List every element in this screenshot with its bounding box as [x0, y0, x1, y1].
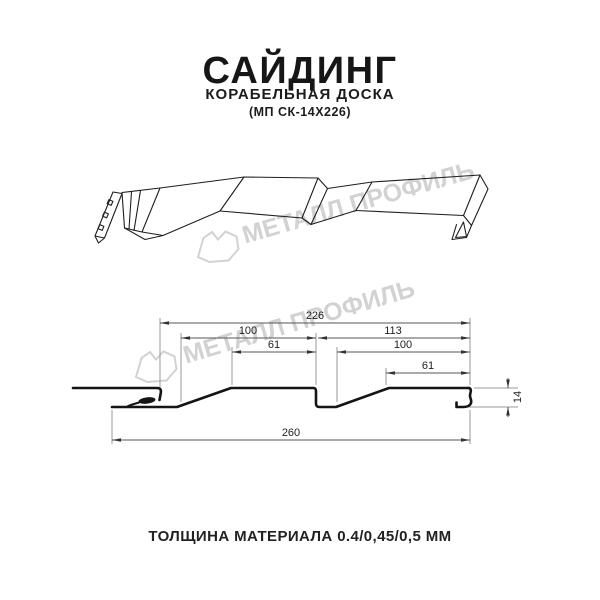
profile-outline	[73, 388, 471, 407]
dim-100-right: 100	[378, 339, 428, 351]
panel-sheet	[142, 175, 488, 240]
lock-curl	[138, 396, 156, 404]
panel-3d-drawing	[85, 158, 505, 288]
dimension-arrows	[112, 321, 510, 442]
nail-strip	[95, 192, 122, 243]
dim-260: 260	[266, 427, 316, 439]
dim-113: 113	[368, 325, 418, 337]
dim-61-right: 61	[403, 360, 453, 372]
product-drawing-page: САЙДИНГ КОРАБЕЛЬНАЯ ДОСКА (МП СК-14Х226)…	[0, 0, 600, 600]
extension-lines	[112, 318, 518, 444]
cross-section-drawing: 226 100 113 61 100 61 260 14	[60, 290, 540, 470]
page-subtitle: КОРАБЕЛЬНАЯ ДОСКА	[0, 86, 600, 103]
dim-14-height: 14	[508, 387, 528, 407]
dim-226: 226	[290, 310, 340, 322]
dim-100-left: 100	[223, 325, 273, 337]
product-code: (МП СК-14Х226)	[0, 105, 600, 119]
material-thickness-note: ТОЛЩИНА МАТЕРИАЛА 0.4/0,45/0,5 ММ	[0, 528, 600, 545]
dim-61-left: 61	[249, 339, 299, 351]
dimension-lines	[112, 323, 508, 440]
